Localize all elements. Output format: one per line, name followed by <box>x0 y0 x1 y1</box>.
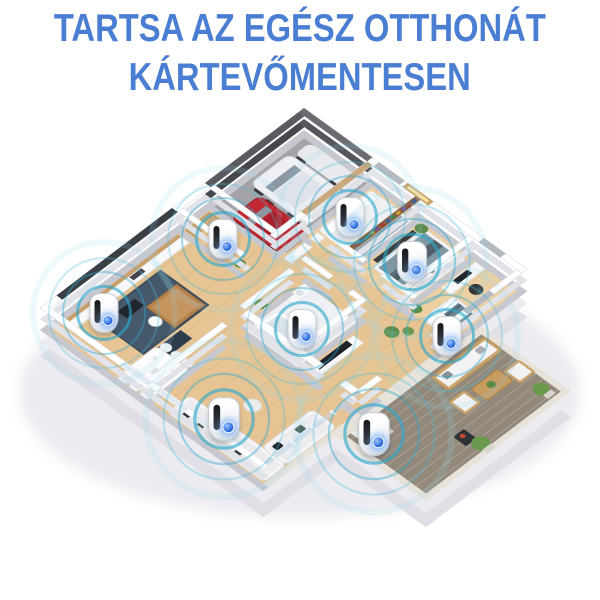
headline-line-2: KÁRTEVŐMENTESEN <box>129 57 471 98</box>
headline-line-1: TARTSA AZ EGÉSZ OTTHONÁT <box>54 8 546 49</box>
product-marketing-image: TARTSA AZ EGÉSZ OTTHONÁT KÁRTEVŐMENTESEN <box>0 0 600 600</box>
headline: TARTSA AZ EGÉSZ OTTHONÁT KÁRTEVŐMENTESEN <box>0 8 600 106</box>
